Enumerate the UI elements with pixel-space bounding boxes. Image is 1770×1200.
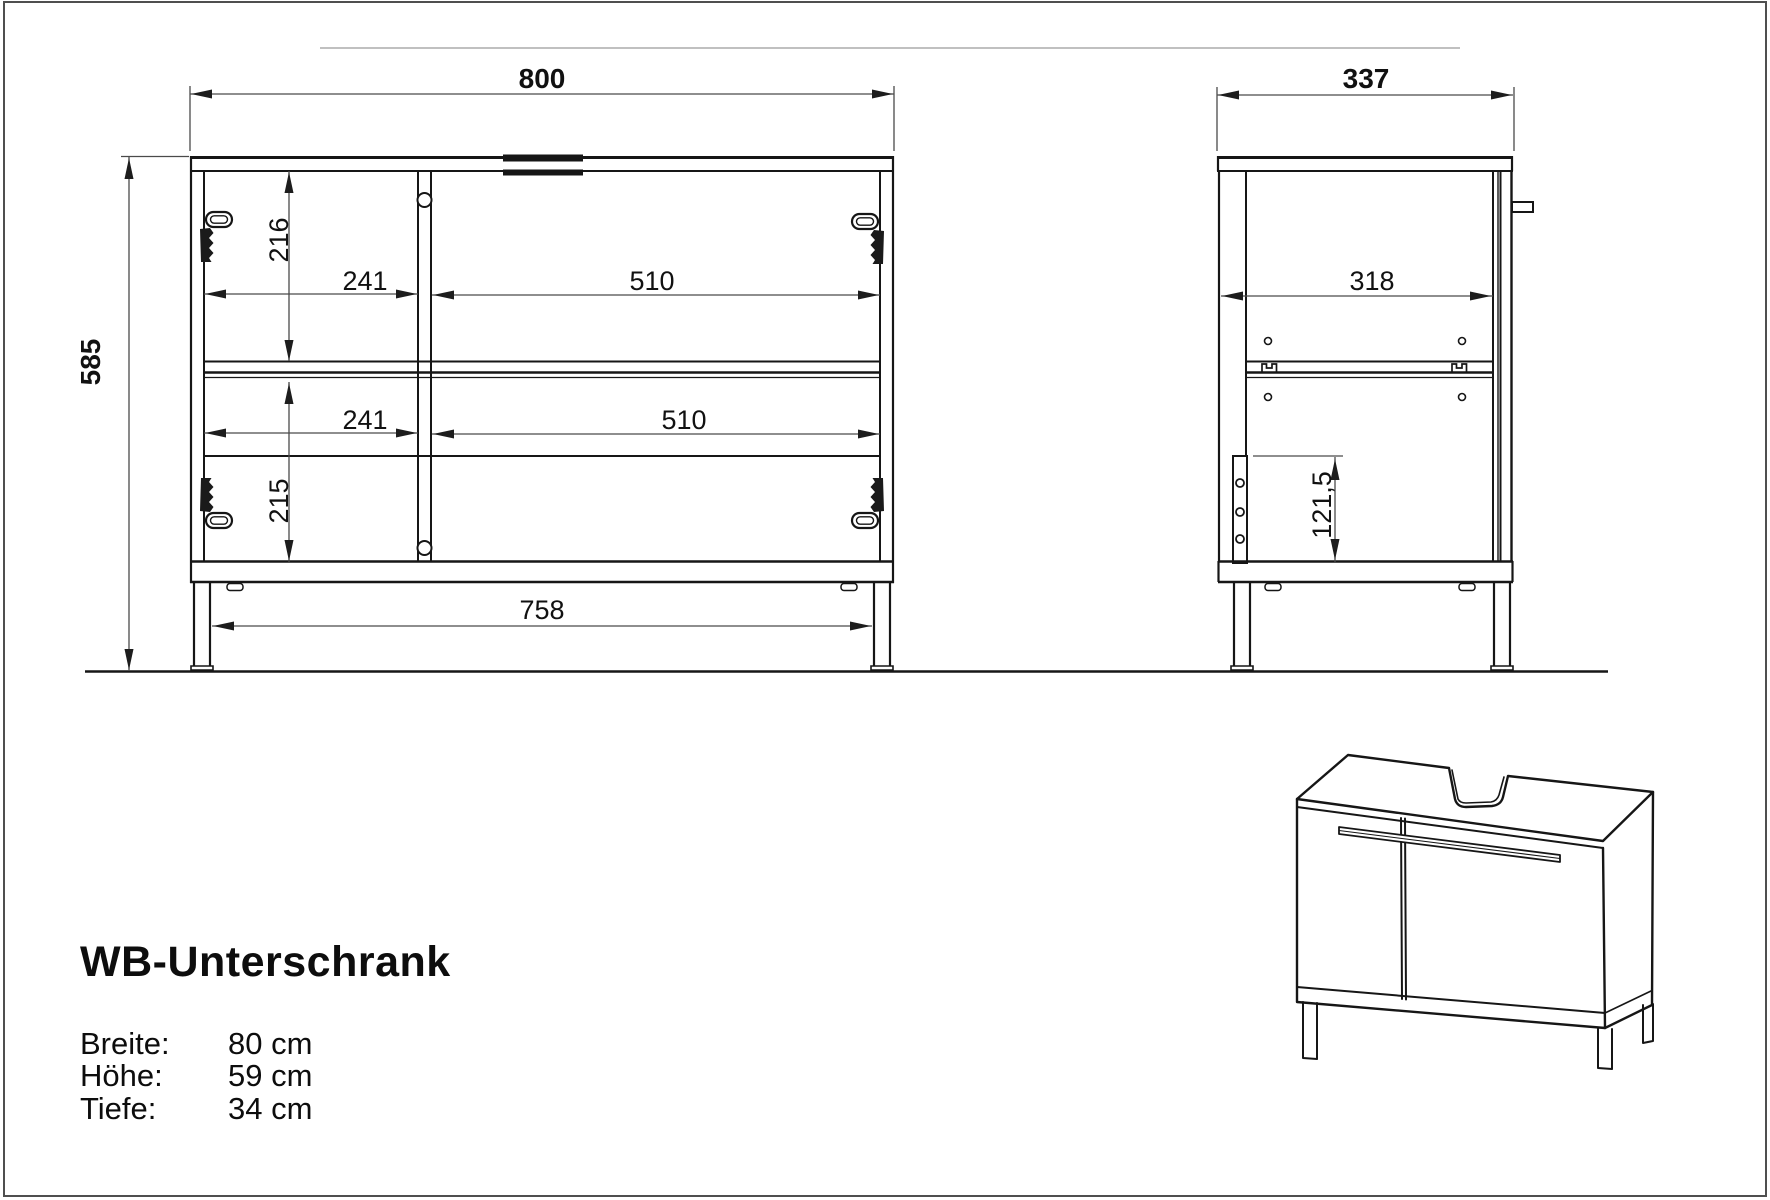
spec-label: Breite: <box>80 1028 228 1060</box>
dim-label-121-5: 121,5 <box>1307 471 1337 539</box>
spec-label: Höhe: <box>80 1060 228 1092</box>
product-title: WB-Unterschrank <box>80 938 451 987</box>
dim-label-height-585: 585 <box>75 339 106 386</box>
spec-row-tiefe: Tiefe: 34 cm <box>80 1093 312 1125</box>
drawing-sheet: 800 585 216 215 241 510 241 510 758 <box>0 0 1770 1200</box>
page-frame <box>4 2 1766 1196</box>
dim-label-216: 216 <box>264 217 294 262</box>
spec-label: Tiefe: <box>80 1093 228 1125</box>
spec-row-hoehe: Höhe: 59 cm <box>80 1060 312 1092</box>
side-view-dimensions: 337 318 121,5 <box>1217 63 1514 562</box>
door-handle <box>1512 202 1533 212</box>
dim-label-318: 318 <box>1349 266 1394 296</box>
side-view: 337 318 121,5 <box>1217 63 1533 670</box>
spec-table: Breite: 80 cm Höhe: 59 cm Tiefe: 34 cm <box>80 1028 312 1125</box>
dim-label-510-upper: 510 <box>629 266 674 296</box>
front-view-carcass <box>190 156 894 670</box>
spec-value: 34 cm <box>228 1093 312 1125</box>
dim-label-510-lower: 510 <box>661 405 706 435</box>
spec-value: 59 cm <box>228 1060 312 1092</box>
side-view-carcass <box>1217 156 1533 670</box>
shelf-clip-icon <box>1452 364 1467 372</box>
dim-label-241-upper: 241 <box>342 266 387 296</box>
spec-value: 80 cm <box>228 1028 312 1060</box>
dim-label-width-800: 800 <box>519 63 566 94</box>
front-view: 800 585 216 215 241 510 241 510 758 <box>75 63 894 671</box>
dim-label-215: 215 <box>264 478 294 523</box>
perspective-view <box>1297 755 1653 1069</box>
technical-drawing-canvas: 800 585 216 215 241 510 241 510 758 <box>0 0 1770 1200</box>
shelf-clip-icon <box>1262 364 1277 372</box>
front-view-dimensions: 800 585 216 215 241 510 241 510 758 <box>75 63 894 671</box>
spec-row-breite: Breite: 80 cm <box>80 1028 312 1060</box>
dim-label-241-lower: 241 <box>342 405 387 435</box>
dim-label-758: 758 <box>519 595 564 625</box>
dim-label-depth-337: 337 <box>1343 63 1390 94</box>
